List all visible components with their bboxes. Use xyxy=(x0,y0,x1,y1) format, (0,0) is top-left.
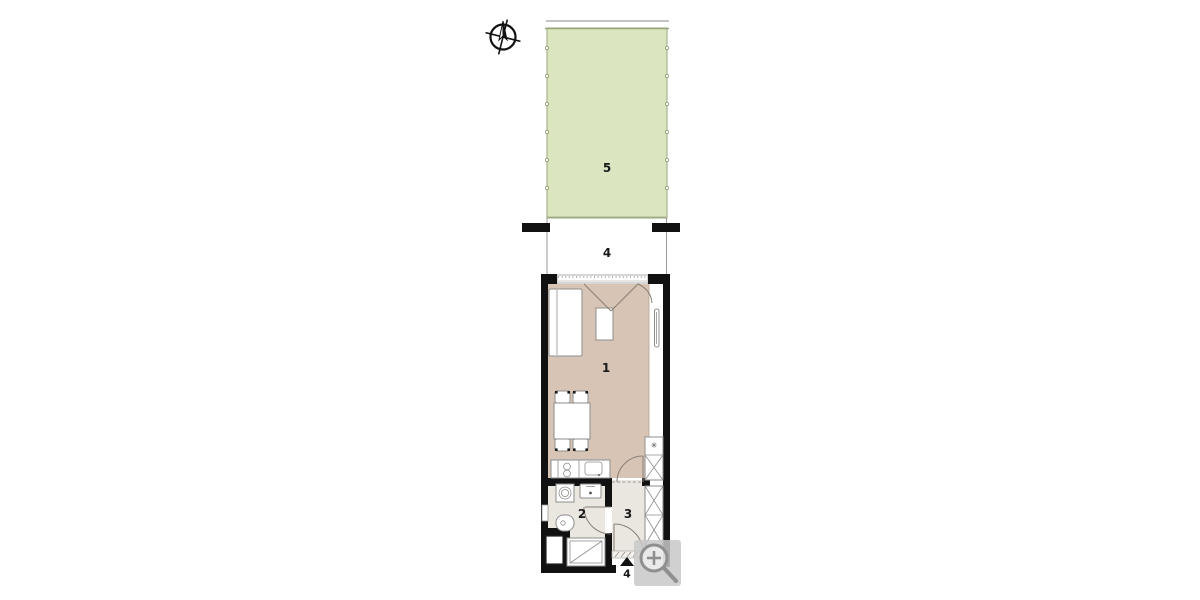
sink-tap xyxy=(598,474,600,476)
dining-table xyxy=(554,403,590,439)
duct-shaft xyxy=(546,536,563,564)
room-label-garden: 5 xyxy=(603,162,611,174)
garden-area xyxy=(545,28,669,218)
room-label-terrace: 4 xyxy=(603,247,611,259)
floorplan-canvas: 5 4 1 2 3 4 ✳ xyxy=(0,0,1200,600)
window-band xyxy=(557,275,648,283)
bed xyxy=(549,289,582,356)
wall-niche xyxy=(542,505,548,521)
room-label-hall: 3 xyxy=(624,508,632,520)
chair xyxy=(573,391,588,403)
wardrobe-column xyxy=(645,437,663,545)
zoom-in-button[interactable] xyxy=(634,540,681,586)
room-label-living: 1 xyxy=(602,362,610,374)
kitchen-counter xyxy=(551,460,610,478)
zoom-in-icon xyxy=(634,540,681,586)
room-label-bathroom: 2 xyxy=(578,508,586,520)
neighbour-wall-right xyxy=(652,223,680,232)
bathroom-sink xyxy=(580,484,601,498)
floorplan-drawing xyxy=(0,0,1200,600)
chair xyxy=(573,439,588,451)
compass-icon xyxy=(481,15,525,59)
shower xyxy=(567,538,605,566)
radiator xyxy=(655,309,660,347)
side-table xyxy=(596,308,613,340)
toilet xyxy=(556,515,574,531)
chair xyxy=(555,439,570,451)
entrance-number-label: 4 xyxy=(623,569,631,580)
shaft-symbol-icon: ✳ xyxy=(651,442,658,450)
washing-machine xyxy=(556,484,574,502)
neighbour-wall-left xyxy=(522,223,550,232)
chair xyxy=(555,391,570,403)
